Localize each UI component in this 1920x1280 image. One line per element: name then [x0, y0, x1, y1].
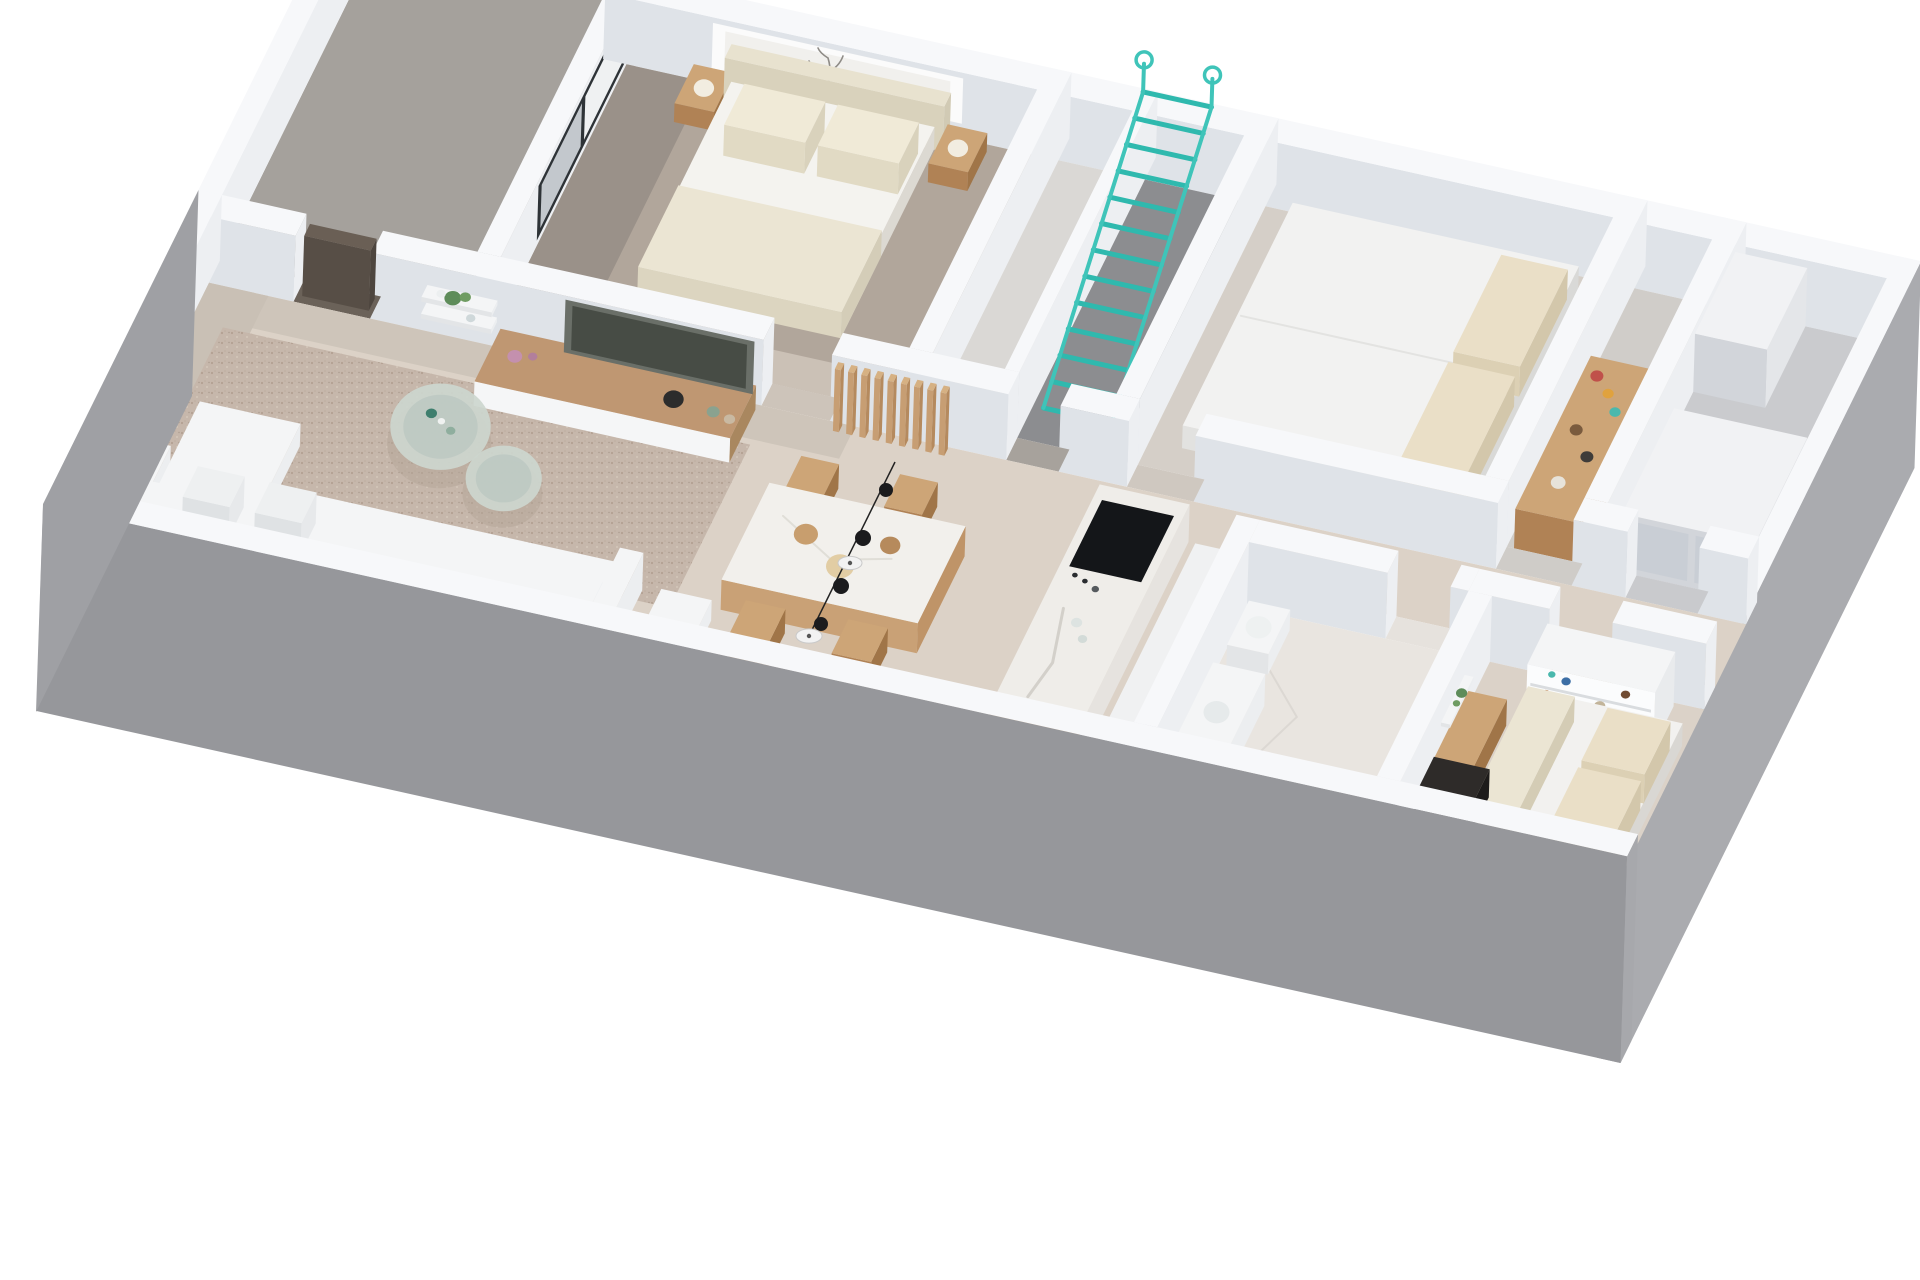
lamp-left	[694, 79, 714, 97]
coffee-table-1-inner	[403, 395, 477, 459]
lamp-right	[948, 140, 968, 158]
sink-basin	[1204, 701, 1230, 723]
hall-wall-g	[1698, 526, 1760, 625]
hall-wall-d	[1059, 384, 1140, 487]
scene-root	[0, 0, 1920, 1280]
floorplan-canvas	[0, 0, 1920, 1280]
toilet-seat	[1246, 616, 1272, 638]
coffee-table-2-inner	[476, 454, 532, 502]
entry-door	[302, 224, 376, 311]
hall-wall-f	[1572, 498, 1639, 598]
